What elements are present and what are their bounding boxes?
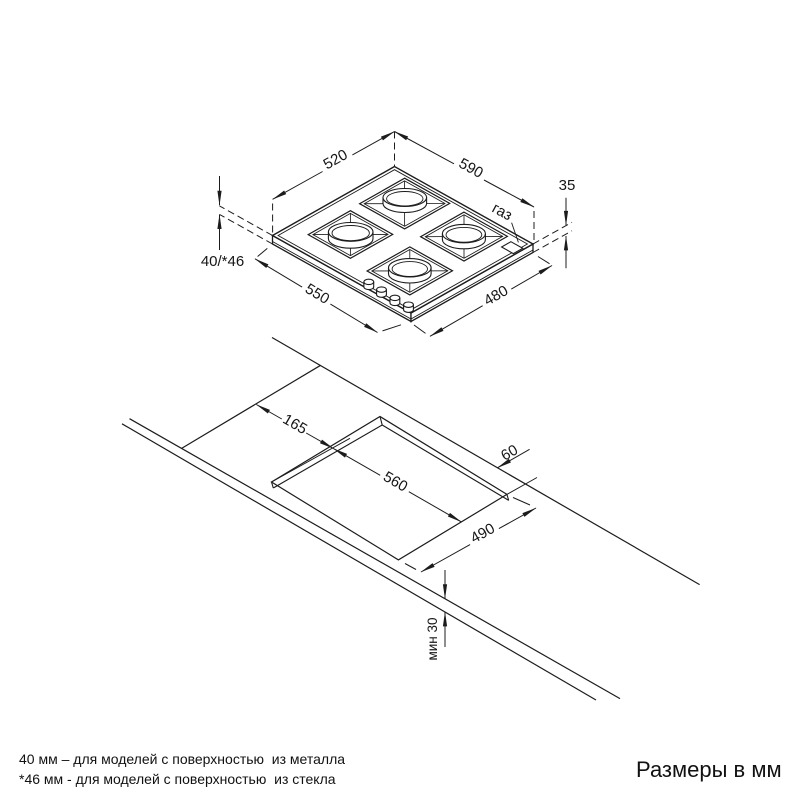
svg-text:мин 30: мин 30 xyxy=(425,617,440,660)
svg-text:35: 35 xyxy=(559,177,576,194)
svg-text:40/*46: 40/*46 xyxy=(201,253,244,270)
